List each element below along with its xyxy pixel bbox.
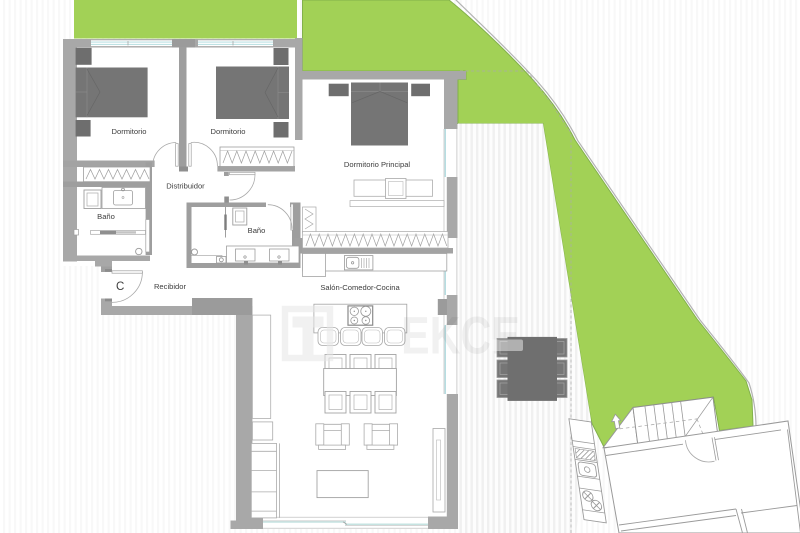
svg-text:Salón-Comedor-Cocina: Salón-Comedor-Cocina bbox=[320, 283, 400, 292]
svg-text:Recibidor: Recibidor bbox=[154, 282, 187, 291]
svg-text:Baño: Baño bbox=[248, 226, 266, 235]
svg-text:Baño: Baño bbox=[97, 212, 115, 221]
svg-text:Dormitorio: Dormitorio bbox=[111, 127, 146, 136]
svg-text:C: C bbox=[116, 281, 124, 293]
svg-text:Distribuidor: Distribuidor bbox=[166, 182, 205, 191]
svg-text:Dormitorio: Dormitorio bbox=[210, 127, 245, 136]
svg-text:Dormitorio Principal: Dormitorio Principal bbox=[344, 160, 411, 169]
